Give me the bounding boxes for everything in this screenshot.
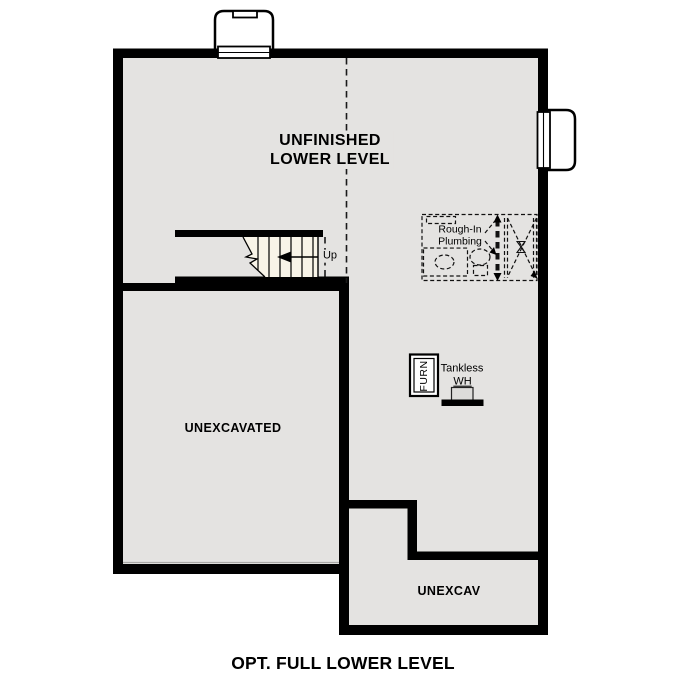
wh-label: WH (453, 375, 471, 388)
furnace-label: FURN (418, 360, 430, 391)
stairs-up-label: Up (322, 250, 338, 263)
room-label-unexcav: UNEXCAV (418, 584, 481, 598)
plan-caption: OPT. FULL LOWER LEVEL (231, 653, 455, 673)
room-label-unexcavated: UNEXCAVATED (185, 421, 282, 435)
floor-plan: UNFINISHED LOWER LEVEL Up Rough-In Plumb… (0, 0, 687, 687)
floor-plan-drawing (0, 0, 687, 687)
right-window-icon (538, 112, 551, 168)
room-label-unfinished-lower-level: UNFINISHED LOWER LEVEL (267, 131, 393, 169)
top-window-icon (218, 47, 270, 59)
right-window-well-icon (547, 110, 575, 170)
rough-in-plumbing-label: Rough-In Plumbing (437, 225, 483, 248)
tankless-label: Tankless (441, 363, 484, 376)
